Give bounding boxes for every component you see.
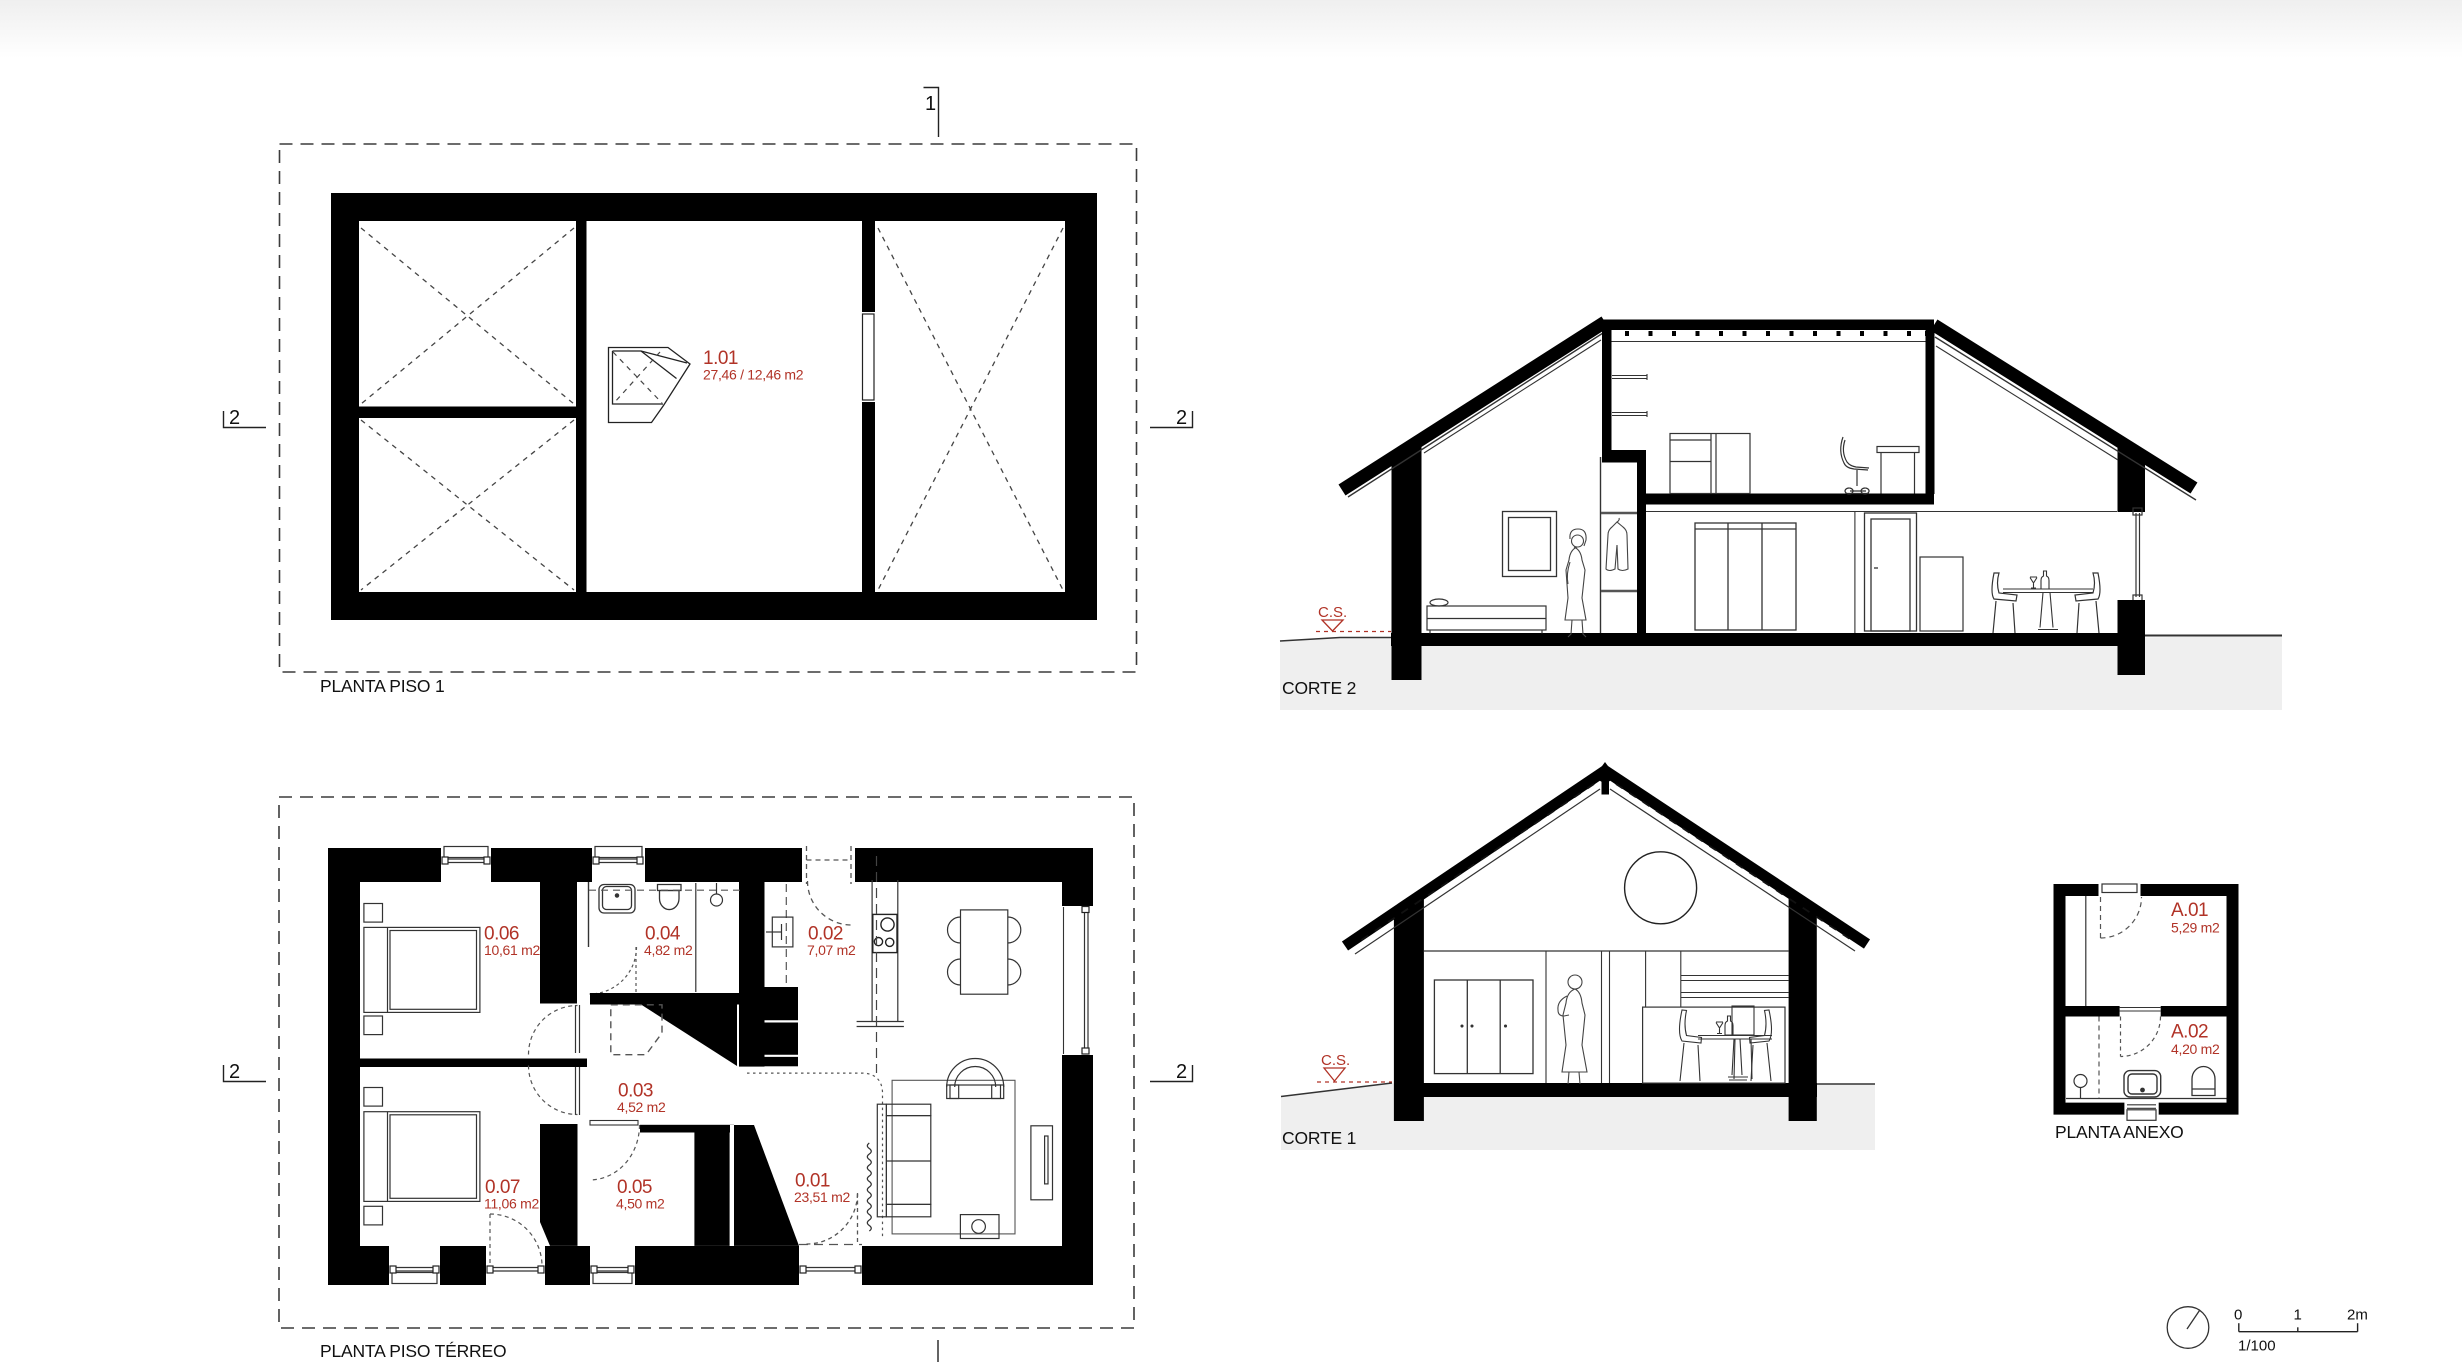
svg-text:0: 0	[2234, 1307, 2242, 1324]
svg-text:7,07 m2: 7,07 m2	[807, 942, 856, 958]
svg-text:PLANTA PISO TÉRREO: PLANTA PISO TÉRREO	[320, 1341, 506, 1361]
svg-text:2: 2	[229, 407, 240, 429]
svg-text:2m: 2m	[2347, 1307, 2368, 1324]
svg-text:PLANTA ANEXO: PLANTA ANEXO	[2055, 1122, 2184, 1142]
svg-text:4,20 m2: 4,20 m2	[2171, 1041, 2220, 1057]
svg-text:4,50 m2: 4,50 m2	[616, 1196, 665, 1212]
svg-text:2: 2	[229, 1061, 240, 1083]
svg-text:27,46 / 12,46 m2: 27,46 / 12,46 m2	[703, 367, 804, 383]
svg-text:1: 1	[2294, 1307, 2302, 1324]
svg-text:4,82 m2: 4,82 m2	[644, 942, 693, 958]
svg-text:A.01: A.01	[2171, 900, 2208, 921]
svg-text:C.S.: C.S.	[1321, 1052, 1350, 1069]
svg-text:CORTE 2: CORTE 2	[1282, 678, 1356, 698]
svg-text:C.S.: C.S.	[1318, 604, 1347, 621]
svg-text:1: 1	[925, 93, 936, 115]
svg-text:2: 2	[1176, 407, 1187, 429]
svg-text:A.02: A.02	[2171, 1022, 2208, 1043]
svg-text:23,51 m2: 23,51 m2	[794, 1189, 850, 1205]
svg-text:PLANTA PISO 1: PLANTA PISO 1	[320, 676, 445, 696]
svg-text:11,06 m2: 11,06 m2	[484, 1196, 539, 1212]
svg-text:2: 2	[1176, 1061, 1187, 1083]
svg-text:10,61 m2: 10,61 m2	[484, 942, 540, 958]
svg-text:1/100: 1/100	[2238, 1338, 2276, 1355]
svg-text:4,52 m2: 4,52 m2	[617, 1099, 666, 1115]
svg-text:CORTE 1: CORTE 1	[1282, 1128, 1356, 1148]
svg-text:5,29 m2: 5,29 m2	[2171, 920, 2220, 936]
